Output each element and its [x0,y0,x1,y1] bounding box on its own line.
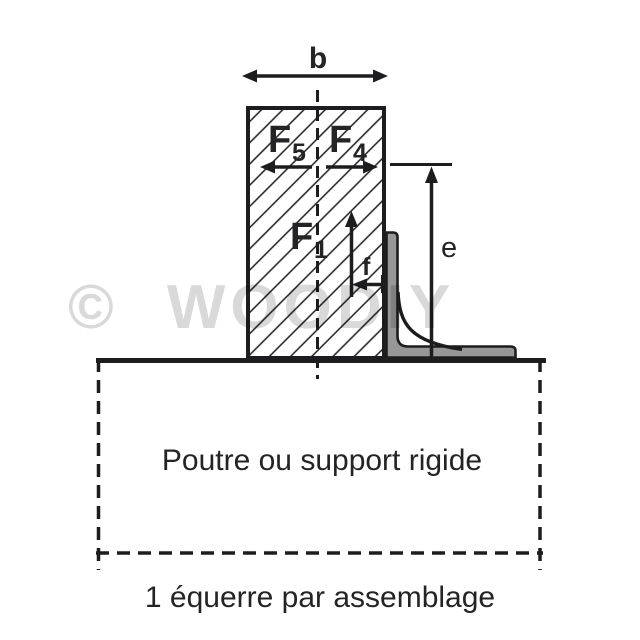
figure-caption: 1 équerre par assemblage [145,581,495,614]
f4-label: F [329,119,352,161]
f5-subscript: 5 [292,139,306,167]
f5-label: F [268,119,291,161]
e-dimension: e [390,165,457,358]
assembly-diagram: b F 5 F 4 F 1 f e [0,0,640,640]
b-dimension-label: b [309,42,327,75]
f1-subscript: 1 [314,236,328,264]
figure-canvas: b F 5 F 4 F 1 f e [0,0,640,640]
f1-label: F [290,216,313,258]
f-dimension-label: f [362,253,371,281]
b-arrow-left-head [242,70,257,83]
e-arrow-head [425,167,438,184]
b-dimension: b [242,42,388,83]
b-arrow-right-head [373,70,388,83]
e-dimension-label: e [441,232,457,264]
support-outline: Poutre ou support rigide [96,359,546,570]
support-label: Poutre ou support rigide [162,444,482,477]
